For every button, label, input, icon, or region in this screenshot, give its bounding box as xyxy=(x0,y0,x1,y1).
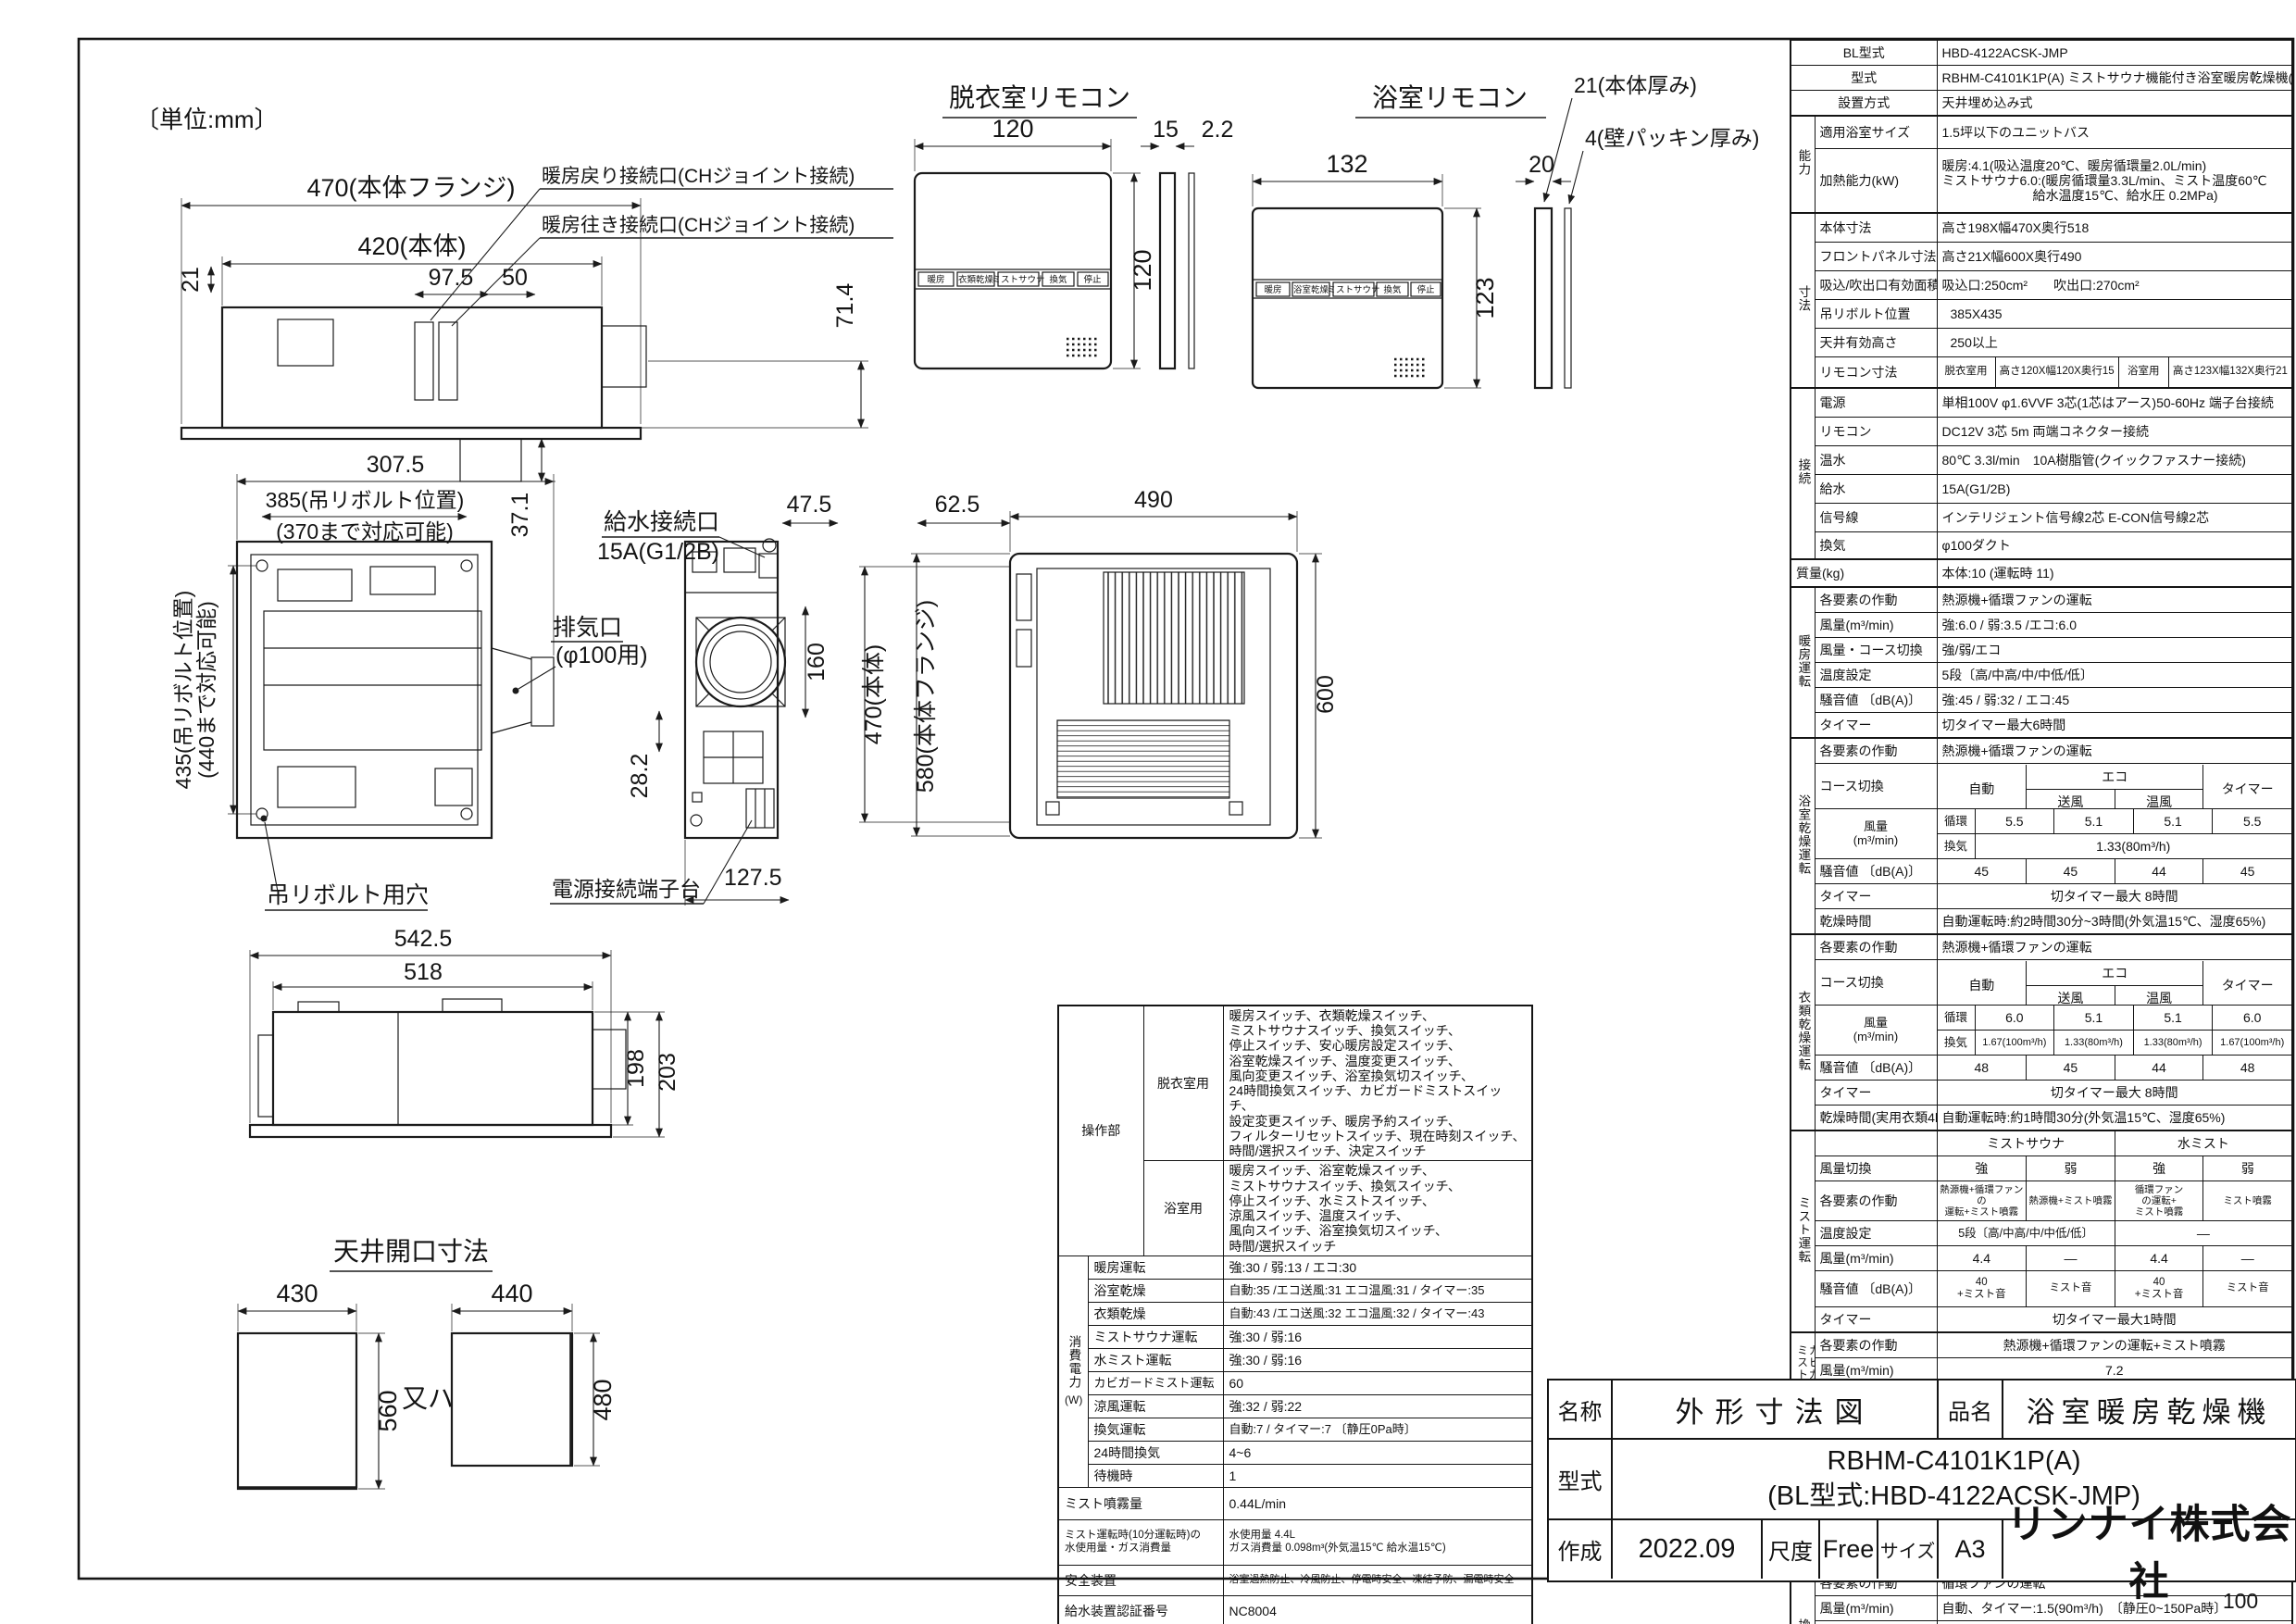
dim-198: 198 xyxy=(623,1049,649,1088)
dim-body-width: 420(本体) xyxy=(357,232,466,260)
dim-385-bolt: 385(吊リボルト位置) xyxy=(266,488,465,512)
power-row: 水ミスト運転強:30 / 弱:16 xyxy=(1058,1348,1532,1371)
power-row: 浴室乾燥自動:35 /エコ送風:31 エコ温風:31 / タイマー:35 xyxy=(1058,1279,1532,1302)
power-value: 強:30 / 弱:13 / エコ:30 xyxy=(1223,1255,1532,1279)
dim-21: 21 xyxy=(178,267,204,293)
mist-spray-label: ミスト噴霧量 xyxy=(1058,1487,1223,1519)
drawing-name: 外形寸法図 xyxy=(1611,1380,1937,1438)
dim-remote-w: 120 xyxy=(992,115,1033,143)
dim-28-2: 28.2 xyxy=(627,754,653,799)
dim-50: 50 xyxy=(502,265,528,291)
misc-row: ミスト噴霧量0.44L/min xyxy=(1058,1487,1532,1519)
mist-usage-value: 水使用量 4.4L ガス消費量 0.098m³(外気温15℃ 給水温15℃) xyxy=(1223,1519,1532,1565)
spec-label: BL型式 xyxy=(1791,40,1937,66)
power-label: 暖房運転 xyxy=(1088,1255,1223,1279)
controls-label: 操作部 xyxy=(1058,1006,1143,1255)
dim-127-5: 127.5 xyxy=(724,865,782,891)
group-connection: 接続 xyxy=(1791,388,1815,559)
water-inlet-label: 給水接続口 xyxy=(604,509,719,535)
wall-packing-note: 4(壁パッキン厚み) xyxy=(1585,126,1759,150)
power-row: 衣類乾燥自動:43 /エコ送風:32 エコ温風:32 / タイマー:43 xyxy=(1058,1302,1532,1325)
spec-value: HBD-4122ACSK-JMP xyxy=(1937,40,2292,66)
top-view: 307.5 385(吊リボルト位置) (370まで対応可能) 435(吊リボルト… xyxy=(171,452,554,910)
product-label: 品名 xyxy=(1937,1380,2002,1438)
dim-430: 430 xyxy=(276,1280,318,1307)
controls-power-table: 操作部 脱衣室用 暖房スイッチ、衣類乾燥スイッチ、 ミストサウナスイッチ、換気ス… xyxy=(1057,1005,1533,1624)
dressing-room-switch-list: 暖房スイッチ、衣類乾燥スイッチ、 ミストサウナスイッチ、換気スイッチ、 停止スイ… xyxy=(1223,1006,1532,1161)
dim-remote-d: 15 xyxy=(1153,117,1179,143)
dim-remote-h: 123 xyxy=(1471,277,1499,319)
btn-label: 換気 xyxy=(1049,274,1067,285)
power-row: ミストサウナ運転強:30 / 弱:16 xyxy=(1058,1325,1532,1348)
model-label: 型式 xyxy=(1549,1440,1611,1518)
front-panel-view: 62.5 490 600 xyxy=(917,487,1339,838)
power-terminal-label: 電源接続端子台 xyxy=(552,877,701,901)
dim-62-5: 62.5 xyxy=(935,492,980,518)
dim-37-1: 37.1 xyxy=(507,493,533,538)
water-mist-header: 水ミスト xyxy=(2115,1131,2291,1156)
safety-label: 安全装置 xyxy=(1058,1565,1223,1595)
bathroom-switch-list: 暖房スイッチ、浴室乾燥スイッチ、 ミストサウナスイッチ、換気スイッチ、 停止スイ… xyxy=(1223,1161,1532,1255)
dim-470-body: 470(本体) xyxy=(861,644,887,744)
misc-row: ミスト運転時(10分運転時)の 水使用量・ガス消費量水使用量 4.4L ガス消費… xyxy=(1058,1519,1532,1565)
exhaust-size: (φ100用) xyxy=(555,643,648,668)
cert-label: 給水装置認証番号 xyxy=(1058,1595,1223,1624)
water-inlet-size: 15A(G1/2B) xyxy=(597,539,719,565)
body-thickness-note: 21(本体厚み) xyxy=(1574,73,1697,97)
height-dims: 470(本体) 580(本体フランジ) xyxy=(859,554,1010,836)
dim-560: 560 xyxy=(374,1390,402,1431)
heating-return-label: 暖房戻り接続口(CHジョイント接続) xyxy=(542,166,855,187)
dim-435-note: (440まで対応可能) xyxy=(194,601,218,779)
drawing-sheet: 〔単位:mm〕 100 470(本体フランジ) 420(本体) 97.5 50 … xyxy=(0,0,2296,1624)
dressing-remote-view: 脱衣室リモコン 暖房 衣類乾燥 ミストサウナ 換気 停止 120 15 2.2 … xyxy=(915,83,1233,369)
dim-518: 518 xyxy=(404,959,443,985)
dim-490: 490 xyxy=(1134,487,1173,513)
btn-label: 衣類乾燥 xyxy=(958,274,994,285)
dim-remote-d2: 2.2 xyxy=(1202,117,1234,143)
group-dimensions: 寸法 xyxy=(1791,213,1815,388)
bathroom-label: 浴室用 xyxy=(1143,1161,1223,1255)
dressing-room-label: 脱衣室用 xyxy=(1143,1006,1223,1161)
bath-remote-view: 浴室リモコン 暖房 浴室乾燥 ミストサウナ 換気 停止 132 20 21(本体… xyxy=(1253,73,1759,388)
size-value: A3 xyxy=(1937,1520,2002,1579)
dressing-remote-title: 脱衣室リモコン xyxy=(949,83,1130,112)
dim-480: 480 xyxy=(589,1379,617,1420)
ceiling-opening-view: 天井開口寸法 430 560 又ハ 440 480 xyxy=(238,1237,617,1489)
mist-spray-value: 0.44L/min xyxy=(1223,1487,1532,1519)
title-block: 名称 外形寸法図 品名 浴室暖房乾燥機 型式 RBHM-C4101K1P(A) … xyxy=(1547,1379,2296,1582)
heating-supply-label: 暖房往き接続口(CHジョイント接続) xyxy=(542,215,855,236)
misc-row: 安全装置浴室過熱防止、冷風防止、停電時安全、凍結予防、漏電時安全 xyxy=(1058,1565,1532,1595)
bath-remote-title: 浴室リモコン xyxy=(1372,83,1528,112)
dim-47-5: 47.5 xyxy=(787,492,832,518)
safety-value: 浴室過熱防止、冷風防止、停電時安全、凍結予防、漏電時安全 xyxy=(1223,1565,1532,1595)
dim-flange-width: 470(本体フランジ) xyxy=(306,174,515,202)
dim-307-5: 307.5 xyxy=(367,452,425,478)
controls-row: 操作部 脱衣室用 暖房スイッチ、衣類乾燥スイッチ、 ミストサウナスイッチ、換気ス… xyxy=(1058,1006,1532,1161)
flange-side-view: 542.5 518 198 203 xyxy=(250,926,680,1137)
name-label: 名称 xyxy=(1549,1380,1611,1438)
dim-remote-w: 132 xyxy=(1326,150,1367,178)
btn-label: 暖房 xyxy=(1264,284,1281,295)
exhaust-label: 排気口 xyxy=(553,615,622,641)
dim-580-flange: 580(本体フランジ) xyxy=(913,600,939,793)
side-view: 給水接続口 15A(G1/2B) 排気口 (φ100用) 47.5 160 28… xyxy=(513,492,839,906)
btn-label: 暖房 xyxy=(927,274,944,285)
group-capacity: 能力 xyxy=(1791,116,1815,213)
group-heating: 暖房運転 xyxy=(1791,587,1815,738)
btn-label: 浴室乾燥 xyxy=(1293,284,1329,295)
mist-usage-label: ミスト運転時(10分運転時)の 水使用量・ガス消費量 xyxy=(1058,1519,1223,1565)
group-mist: ミスト運転 xyxy=(1791,1131,1815,1332)
power-row: 消費電力(W) 暖房運転 強:30 / 弱:13 / エコ:30 xyxy=(1058,1255,1532,1279)
ceiling-opening-title: 天井開口寸法 xyxy=(333,1237,489,1266)
size-label: サイズ xyxy=(1877,1520,1937,1579)
dim-71-4: 71.4 xyxy=(832,283,858,329)
btn-label: 換気 xyxy=(1383,284,1402,295)
power-group-label: 消費電力(W) xyxy=(1058,1255,1088,1487)
btn-label: ミストサウナ xyxy=(1327,285,1379,295)
scale-value: Free xyxy=(1818,1520,1877,1579)
dim-440: 440 xyxy=(491,1280,532,1307)
power-row: 24時間換気4~6 xyxy=(1058,1441,1532,1464)
power-row: 涼風運転強:32 / 弱:22 xyxy=(1058,1394,1532,1418)
dim-435-bolt: 435(吊リボルト位置) xyxy=(171,591,195,790)
dim-remote-d: 20 xyxy=(1529,152,1554,178)
dim-385-note: (370まで対応可能) xyxy=(276,519,454,543)
scale-label: 尺度 xyxy=(1761,1520,1818,1579)
mist-sauna-header: ミストサウナ xyxy=(1938,1131,2115,1156)
created-date: 2022.09 xyxy=(1611,1520,1761,1579)
dim-542-5: 542.5 xyxy=(394,926,453,952)
power-row: カビガードミスト運転60 xyxy=(1058,1371,1532,1394)
bolt-hole-label: 吊リボルト用穴 xyxy=(267,882,429,908)
misc-row: 給水装置認証番号NC8004 xyxy=(1058,1595,1532,1624)
power-row: 換気運転自動:7 / タイマー:7 〔静圧0Pa時〕 xyxy=(1058,1418,1532,1441)
or-label: 又ハ xyxy=(402,1384,454,1413)
product-name: 浴室暖房乾燥機 xyxy=(2002,1380,2295,1438)
unit-note: 〔単位:mm〕 xyxy=(135,106,279,133)
dim-remote-h: 120 xyxy=(1129,249,1156,291)
btn-label: ミストサウナ xyxy=(992,275,1044,285)
group-bath-dry: 浴室乾燥運転 xyxy=(1791,738,1815,934)
btn-label: 停止 xyxy=(1083,274,1102,285)
dim-97-5: 97.5 xyxy=(429,265,474,291)
company-name: リンナイ株式会社 xyxy=(2002,1520,2295,1579)
group-cloth-dry: 衣類乾燥運転 xyxy=(1791,934,1815,1131)
cert-value: NC8004 xyxy=(1223,1595,1532,1624)
dim-160: 160 xyxy=(804,643,830,681)
dim-203: 203 xyxy=(655,1053,680,1092)
power-row: 待機時1 xyxy=(1058,1464,1532,1487)
dim-600: 600 xyxy=(1313,675,1339,714)
created-label: 作成 xyxy=(1549,1520,1611,1579)
btn-label: 停止 xyxy=(1416,284,1435,295)
remocon-col: 脱衣室用 xyxy=(1938,357,1995,387)
